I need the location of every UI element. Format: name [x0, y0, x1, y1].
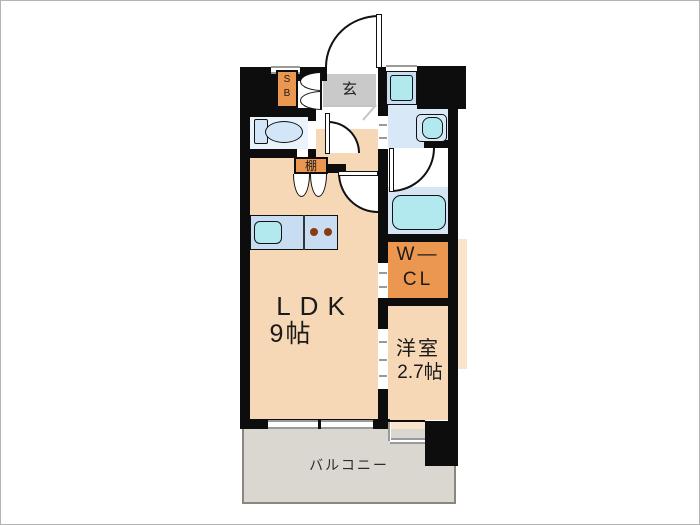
- toilet-door-leaf: [325, 113, 330, 154]
- wall-segment: [378, 149, 388, 263]
- western-room-size-label: 2.7帖: [388, 363, 452, 382]
- floorplan-canvas: 玄 S B 棚 W— CL LDK 9帖 洋室 2.7帖 バルコニー: [0, 0, 700, 525]
- bathtub: [392, 195, 446, 230]
- door-track-mark: [379, 341, 387, 343]
- bay-window: [390, 438, 425, 444]
- entrance-label: 玄: [323, 82, 376, 97]
- ldk-label: LDK: [255, 293, 375, 319]
- washbasin-bowl: [422, 117, 443, 139]
- wall-segment: [308, 108, 316, 121]
- wall-segment: [417, 66, 466, 109]
- western-room-door: [378, 329, 388, 389]
- ldk-door-leaf: [338, 171, 378, 176]
- toilet-bowl: [265, 121, 303, 143]
- adjacent-wall-strip: [458, 239, 467, 369]
- wall-segment: [378, 298, 458, 306]
- wall-segment: [250, 108, 316, 117]
- stove-burner: [324, 228, 332, 236]
- wcl-label-line1: W—: [388, 245, 448, 264]
- balcony-label: バルコニー: [242, 458, 456, 472]
- bay-window-frame: [388, 422, 391, 441]
- wcl-door: [378, 263, 388, 298]
- kitchen-counter-divider: [303, 215, 305, 250]
- shoe-box-label-line1: S: [276, 75, 298, 85]
- entrance-door-leaf: [376, 14, 382, 68]
- washing-machine-pan-inner: [390, 75, 413, 101]
- wall-segment: [240, 67, 250, 429]
- door-track-mark: [379, 124, 387, 126]
- door-track-mark: [379, 137, 387, 139]
- door-track-mark: [379, 359, 387, 361]
- ldk-size-label: 9帖: [231, 322, 351, 347]
- entrance-door-arc: [325, 15, 379, 67]
- bathroom-door-leaf: [389, 148, 394, 192]
- entrance-step-edge: [323, 105, 376, 107]
- western-room-label: 洋室: [388, 339, 448, 359]
- door-track-mark: [379, 272, 387, 274]
- washroom-door: [378, 116, 388, 149]
- door-track-mark: [379, 286, 387, 288]
- wall-segment: [378, 234, 458, 242]
- balcony-window: [268, 420, 318, 429]
- toilet-door-gap: [308, 121, 316, 149]
- wall-segment: [250, 79, 278, 109]
- wall-segment: [390, 420, 425, 422]
- door-track-mark: [379, 375, 387, 377]
- wcl-label-line2: CL: [388, 270, 448, 289]
- kitchen-sink: [254, 221, 282, 244]
- shoe-box-label-line2: B: [276, 89, 298, 99]
- stove-burner: [310, 228, 318, 236]
- wall-segment: [250, 149, 297, 158]
- shelf-label: 棚: [294, 160, 328, 172]
- balcony-window: [321, 420, 373, 429]
